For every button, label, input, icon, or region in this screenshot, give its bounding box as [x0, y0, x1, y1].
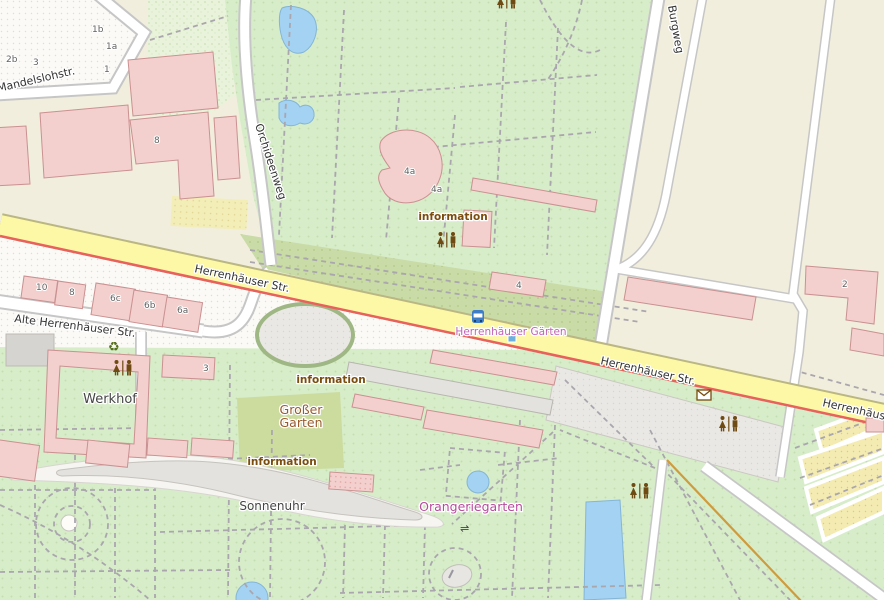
hn-6b: 6b	[144, 301, 156, 311]
pond-orangerie	[467, 471, 489, 493]
tram-stop-label: Herrenhäuser Gärten	[455, 326, 566, 338]
toilets-icon	[719, 416, 737, 432]
hn-8-tl: 8	[154, 136, 160, 146]
map-svg: ♻ ⇌ Mandelslohstr. Orchideenweg Herrenhä…	[0, 0, 884, 600]
toilets-icon	[437, 232, 455, 248]
poi-label-information-2: information	[296, 374, 365, 386]
place-label-sonnenuhr: Sonnenuhr	[239, 499, 304, 513]
poi-label-information-1: information	[418, 211, 487, 223]
hn-1: 1	[104, 65, 110, 75]
bus-stop-icon	[472, 310, 484, 323]
gray-yard	[6, 334, 54, 366]
parking-strip	[170, 196, 247, 230]
hn-2b: 2b	[6, 55, 18, 65]
place-label-orangeriegarten: Orangeriegarten	[419, 499, 523, 514]
hedge-circle	[257, 304, 353, 366]
hn-4a-small: 4a	[431, 185, 442, 195]
canal	[584, 500, 626, 600]
hn-3-tl: 3	[33, 58, 39, 68]
hn-6c: 6c	[110, 294, 121, 304]
hn-10: 10	[36, 283, 48, 293]
hn-6a: 6a	[177, 306, 188, 316]
hn-3-werkhof: 3	[203, 364, 209, 374]
hn-2: 2	[842, 280, 848, 290]
recycling-icon: ♻	[108, 340, 120, 355]
toilets-icon	[630, 483, 648, 499]
place-label-werkhof: Werkhof	[83, 392, 137, 407]
weir-icon: ⇌	[460, 522, 469, 535]
map-canvas[interactable]: ♻ ⇌ Mandelslohstr. Orchideenweg Herrenhä…	[0, 0, 884, 600]
hn-4: 4	[516, 281, 522, 291]
toilets-icon	[497, 0, 515, 9]
hn-1a: 1a	[106, 42, 117, 52]
hn-4a: 4a	[404, 167, 415, 177]
post-box-icon	[697, 390, 711, 400]
hn-1b: 1b	[92, 25, 104, 35]
place-label-grosser-garten-2: Garten	[280, 415, 323, 430]
hn-8-row: 8	[69, 288, 75, 298]
building-pink-hatched	[329, 472, 374, 492]
poi-label-information-3: information	[247, 456, 316, 468]
